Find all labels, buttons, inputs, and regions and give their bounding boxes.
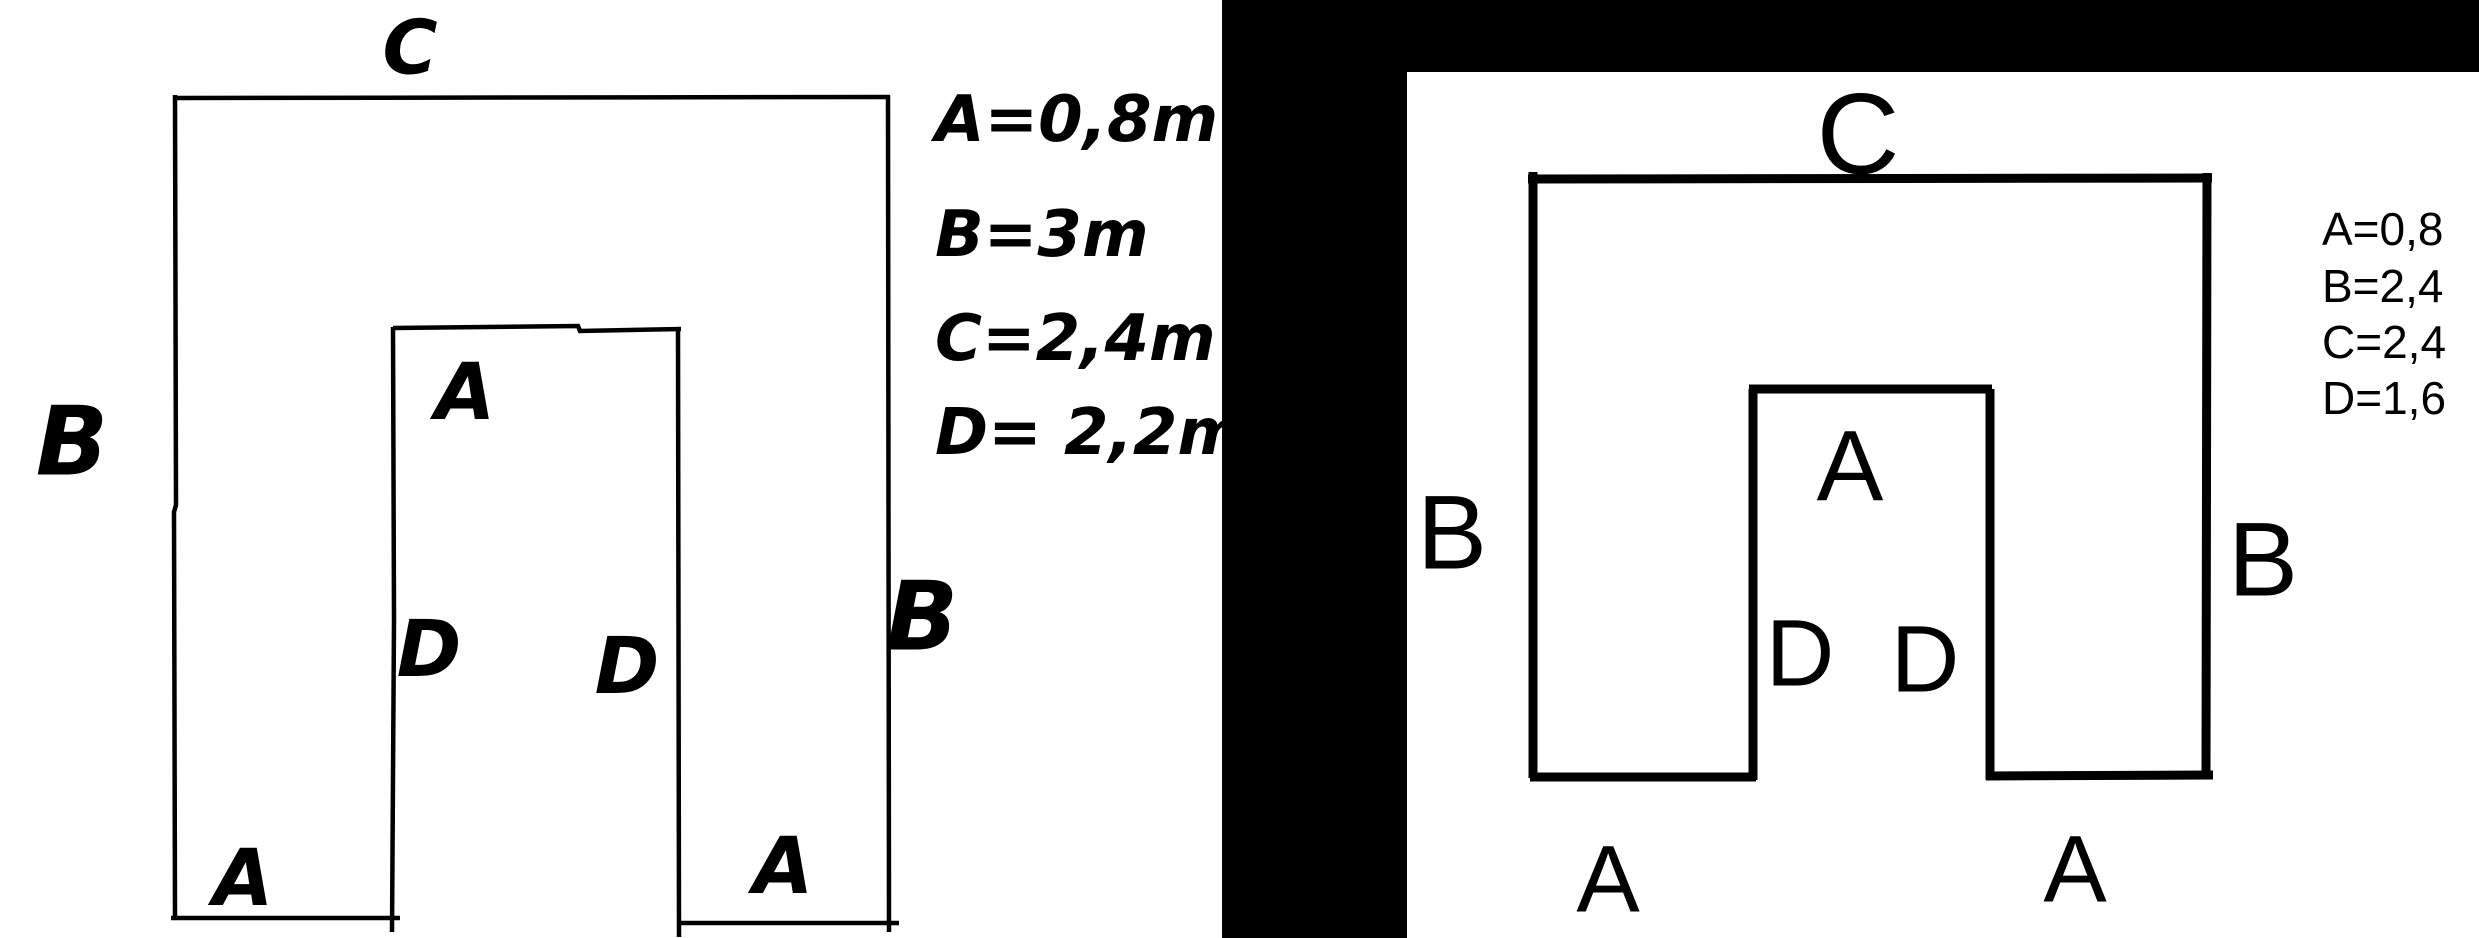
right-label-right-b: B: [2228, 508, 2298, 613]
right-label-left-b: B: [1417, 481, 1487, 586]
page: C B B A D D A A A=0,8m B=3m C=2,4m D= 2,…: [0, 0, 2479, 938]
right-measurement-b: B=2,4: [2322, 263, 2444, 309]
right-label-notch-left-d: D: [1766, 607, 1835, 702]
right-shape-outline: [0, 0, 2479, 938]
right-measurement-c: C=2,4: [2322, 319, 2446, 365]
right-label-bottom-left-a: A: [1576, 833, 1639, 928]
right-label-notch-a: A: [1817, 416, 1884, 516]
right-label-notch-right-d: D: [1891, 613, 1960, 708]
right-label-bottom-right-a: A: [2043, 823, 2106, 918]
right-measurement-d: D=1,6: [2322, 375, 2446, 421]
right-label-top-c: C: [1816, 78, 1899, 193]
right-measurement-a: A=0,8: [2322, 206, 2444, 252]
